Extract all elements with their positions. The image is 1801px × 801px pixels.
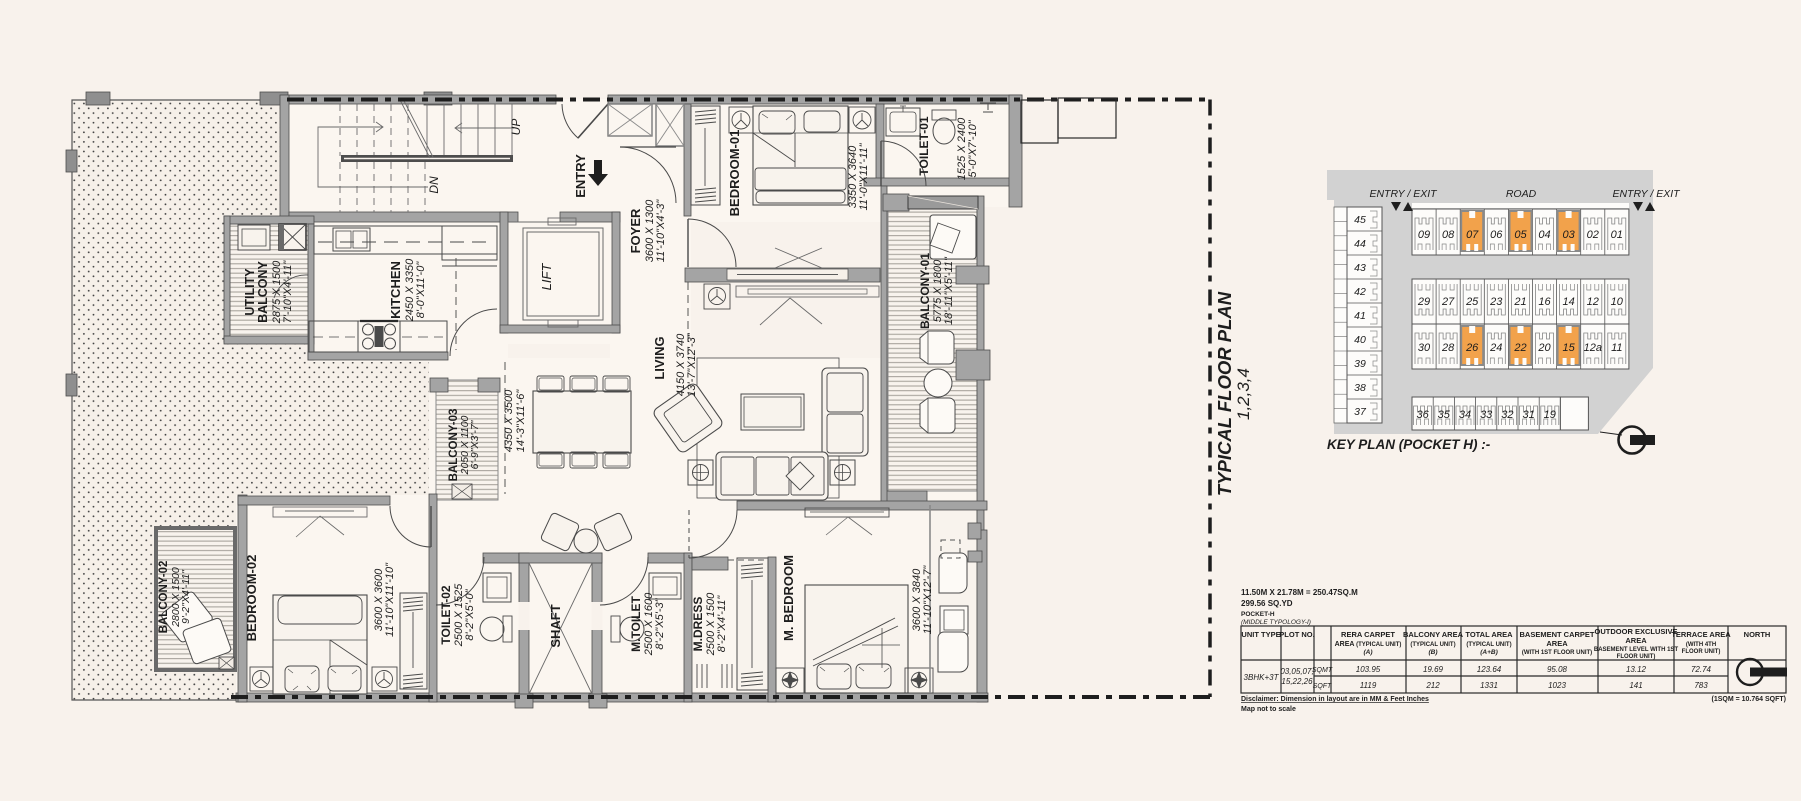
svg-text:20: 20 — [1537, 342, 1551, 354]
svg-text:25: 25 — [1465, 296, 1479, 308]
svg-text:212: 212 — [1425, 681, 1440, 690]
svg-text:33: 33 — [1480, 409, 1493, 421]
svg-text:RERA CARPET: RERA CARPET — [1341, 630, 1395, 639]
svg-text:FLOOR UNIT): FLOOR UNIT) — [1617, 654, 1656, 660]
svg-text:FLOOR UNIT): FLOOR UNIT) — [1682, 649, 1721, 655]
svg-text:BALCONY-01: BALCONY-01 — [918, 253, 932, 329]
svg-text:KITCHEN: KITCHEN — [388, 261, 403, 319]
svg-text:26: 26 — [1465, 342, 1479, 354]
svg-text:14: 14 — [1562, 296, 1574, 308]
svg-text:22: 22 — [1513, 342, 1526, 354]
svg-text:11'-0"X11'-11": 11'-0"X11'-11" — [858, 142, 870, 210]
svg-text:4350 X 3500: 4350 X 3500 — [503, 389, 515, 452]
svg-text:TERRACE AREA: TERRACE AREA — [1671, 630, 1731, 639]
svg-text:27: 27 — [1441, 296, 1455, 308]
svg-text:BALCONY AREA: BALCONY AREA — [1403, 630, 1464, 639]
svg-text:13'-7"X12'-3": 13'-7"X12'-3" — [686, 332, 698, 396]
svg-text:11'-10"X4'-3": 11'-10"X4'-3" — [655, 199, 667, 263]
svg-text:SQMT: SQMT — [1312, 667, 1333, 674]
svg-text:NORTH: NORTH — [1744, 630, 1771, 639]
svg-text:16: 16 — [1538, 296, 1551, 308]
svg-text:(TYPICAL UNIT): (TYPICAL UNIT) — [1466, 642, 1511, 648]
svg-text:02: 02 — [1587, 229, 1599, 241]
svg-text:72.74: 72.74 — [1691, 665, 1712, 674]
svg-text:SQFT: SQFT — [1313, 683, 1332, 690]
svg-text:19: 19 — [1544, 409, 1556, 421]
svg-text:03,05,07,: 03,05,07, — [1280, 667, 1313, 676]
svg-text:3BHK+3T: 3BHK+3T — [1244, 673, 1280, 682]
svg-text:8'-0"X11'-0": 8'-0"X11'-0" — [415, 261, 427, 319]
svg-text:(B): (B) — [1428, 649, 1437, 656]
svg-text:AREA (TYPICAL UNIT): AREA (TYPICAL UNIT) — [1335, 641, 1402, 648]
svg-text:Disclaimer: Dimension in layou: Disclaimer: Dimension in layout are in M… — [1241, 696, 1429, 703]
svg-text:LIVING: LIVING — [652, 336, 667, 379]
svg-text:299.56 SQ.YD: 299.56 SQ.YD — [1241, 599, 1293, 608]
svg-text:FOYER: FOYER — [628, 208, 643, 253]
svg-text:SHAFT: SHAFT — [548, 604, 563, 647]
svg-text:10: 10 — [1611, 296, 1624, 308]
svg-text:BEDROOM-02: BEDROOM-02 — [244, 555, 259, 642]
svg-text:783: 783 — [1694, 681, 1708, 690]
svg-text:7'-10"X4'-11": 7'-10"X4'-11" — [282, 260, 294, 324]
svg-text:1023: 1023 — [1548, 681, 1566, 690]
svg-text:29: 29 — [1417, 296, 1430, 308]
svg-text:1119: 1119 — [1360, 681, 1377, 690]
svg-text:(A): (A) — [1363, 649, 1372, 656]
svg-text:04: 04 — [1538, 229, 1550, 241]
svg-text:34: 34 — [1459, 409, 1471, 421]
svg-text:AREA: AREA — [1625, 636, 1647, 645]
svg-text:5'-0"X7'-10": 5'-0"X7'-10" — [967, 119, 979, 177]
svg-text:8'-2"X4'-11": 8'-2"X4'-11" — [716, 595, 728, 653]
svg-text:M. BEDROOM: M. BEDROOM — [781, 555, 796, 641]
svg-text:ENTRY / EXIT: ENTRY / EXIT — [1612, 188, 1681, 200]
svg-text:03: 03 — [1562, 229, 1575, 241]
svg-text:M.TOILET: M.TOILET — [629, 595, 643, 651]
svg-text:08: 08 — [1442, 229, 1455, 241]
svg-text:11.50M X 21.78M = 250.47SQ.M: 11.50M X 21.78M = 250.47SQ.M — [1241, 588, 1358, 597]
svg-text:24: 24 — [1489, 342, 1502, 354]
svg-text:28: 28 — [1441, 342, 1455, 354]
svg-text:35: 35 — [1438, 409, 1451, 421]
svg-text:DN: DN — [427, 176, 441, 194]
svg-text:M.DRESS: M.DRESS — [691, 597, 705, 652]
svg-text:(TYPICAL UNIT): (TYPICAL UNIT) — [1410, 642, 1455, 648]
svg-text:(A+B): (A+B) — [1480, 649, 1498, 656]
svg-text:BEDROOM-01: BEDROOM-01 — [727, 130, 742, 217]
svg-text:UTILITY: UTILITY — [243, 268, 257, 316]
svg-text:14'-3"X11'-6": 14'-3"X11'-6" — [515, 389, 527, 453]
svg-text:42: 42 — [1354, 286, 1366, 298]
svg-text:1,2,3,4: 1,2,3,4 — [1234, 368, 1253, 420]
svg-text:TOILET-02: TOILET-02 — [439, 585, 453, 644]
svg-text:BALCONY: BALCONY — [256, 260, 270, 322]
svg-text:Map not to scale: Map not to scale — [1241, 706, 1296, 713]
svg-text:31: 31 — [1522, 409, 1534, 421]
svg-text:13.12: 13.12 — [1626, 665, 1647, 674]
svg-text:KEY PLAN (POCKET H) :-: KEY PLAN (POCKET H) :- — [1327, 437, 1491, 452]
svg-text:37: 37 — [1354, 406, 1367, 418]
svg-text:(MIDDLE TYPOLOGY-I): (MIDDLE TYPOLOGY-I) — [1241, 619, 1311, 626]
svg-text:8'-2"X5'-3": 8'-2"X5'-3" — [654, 597, 666, 649]
svg-text:BALCONY-02: BALCONY-02 — [158, 561, 170, 634]
svg-text:21: 21 — [1513, 296, 1526, 308]
svg-text:9'-2"X4'-11": 9'-2"X4'-11" — [180, 569, 192, 624]
svg-text:BASEMENT LEVEL WITH 1ST: BASEMENT LEVEL WITH 1ST — [1594, 647, 1679, 653]
svg-text:12a: 12a — [1584, 342, 1602, 354]
svg-text:1331: 1331 — [1480, 681, 1498, 690]
svg-text:ENTRY: ENTRY — [573, 154, 588, 198]
svg-text:UP: UP — [509, 119, 523, 136]
svg-text:11: 11 — [1611, 342, 1622, 354]
svg-text:PLOT NO.: PLOT NO. — [1279, 630, 1314, 639]
svg-text:23: 23 — [1489, 296, 1503, 308]
svg-text:(WITH 4TH: (WITH 4TH — [1686, 642, 1716, 648]
svg-text:05: 05 — [1514, 229, 1527, 241]
svg-text:06: 06 — [1490, 229, 1503, 241]
svg-text:AREA: AREA — [1546, 639, 1568, 648]
svg-text:OUTDOOR EXCLUSIVE: OUTDOOR EXCLUSIVE — [1595, 627, 1678, 636]
svg-text:39: 39 — [1354, 358, 1366, 370]
svg-text:123.64: 123.64 — [1477, 665, 1502, 674]
svg-text:11'-10"X11'-10": 11'-10"X11'-10" — [384, 562, 396, 637]
svg-text:103.95: 103.95 — [1356, 665, 1381, 674]
svg-text:TOILET-01: TOILET-01 — [917, 116, 931, 175]
svg-text:15: 15 — [1562, 342, 1575, 354]
svg-text:40: 40 — [1354, 334, 1366, 346]
svg-text:(1SQM = 10.764 SQFT): (1SQM = 10.764 SQFT) — [1712, 696, 1787, 703]
svg-text:95.08: 95.08 — [1547, 665, 1568, 674]
svg-text:36: 36 — [1416, 409, 1429, 421]
svg-text:ENTRY / EXIT: ENTRY / EXIT — [1369, 188, 1438, 200]
svg-text:07: 07 — [1466, 229, 1479, 241]
svg-text:38: 38 — [1354, 382, 1366, 394]
svg-text:09: 09 — [1418, 229, 1430, 241]
svg-text:11'-10"X12'-7": 11'-10"X12'-7" — [922, 565, 934, 635]
svg-text:(WITH 1ST FLOOR UNIT): (WITH 1ST FLOOR UNIT) — [1522, 650, 1592, 656]
svg-text:POCKET-H: POCKET-H — [1241, 611, 1275, 618]
svg-text:45: 45 — [1354, 214, 1366, 226]
svg-text:BASEMENT CARPET: BASEMENT CARPET — [1519, 630, 1594, 639]
svg-text:LIFT: LIFT — [539, 263, 554, 291]
svg-text:141: 141 — [1629, 681, 1642, 690]
svg-text:TOTAL AREA: TOTAL AREA — [1465, 630, 1513, 639]
svg-text:44: 44 — [1354, 238, 1366, 250]
svg-text:6'-9"X3'-7": 6'-9"X3'-7" — [469, 419, 481, 469]
svg-text:18'-11"X5'-11": 18'-11"X5'-11" — [943, 256, 955, 325]
svg-text:15,22,26: 15,22,26 — [1281, 677, 1313, 686]
svg-text:30: 30 — [1418, 342, 1431, 354]
svg-text:UNIT TYPE: UNIT TYPE — [1241, 630, 1280, 639]
svg-text:8'-2"X5'-0": 8'-2"X5'-0" — [464, 588, 476, 640]
svg-text:32: 32 — [1501, 409, 1513, 421]
svg-text:TYPICAL FLOOR PLAN: TYPICAL FLOOR PLAN — [1214, 291, 1235, 496]
svg-text:19.69: 19.69 — [1423, 665, 1444, 674]
svg-text:43: 43 — [1354, 262, 1366, 274]
svg-text:12: 12 — [1587, 296, 1599, 308]
svg-text:ROAD: ROAD — [1506, 188, 1537, 200]
svg-text:01: 01 — [1611, 229, 1623, 241]
svg-text:41: 41 — [1354, 310, 1366, 322]
